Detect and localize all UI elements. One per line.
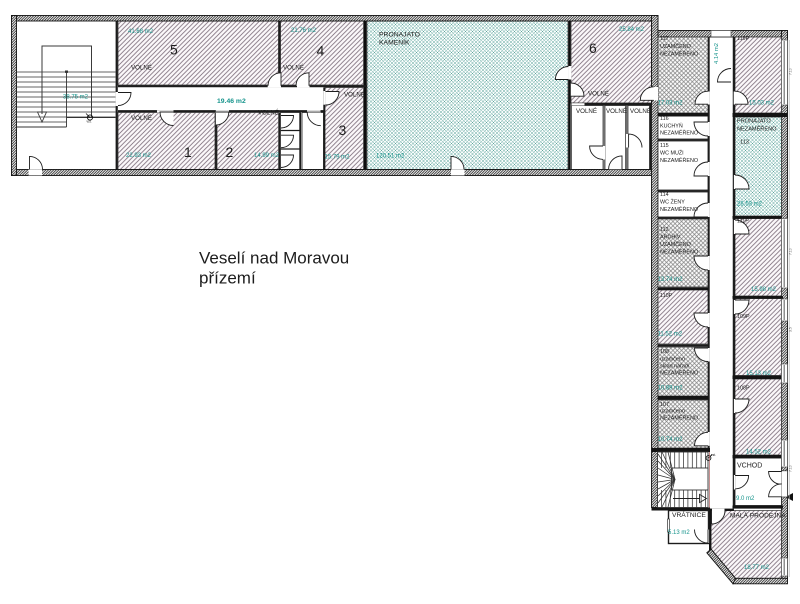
svg-text:110P: 110P	[660, 293, 673, 299]
svg-text:NEZAMĚŘENO: NEZAMĚŘENO	[660, 247, 698, 255]
svg-text:109P: 109P	[737, 314, 750, 320]
svg-text:NEZAMĚŘENO: NEZAMĚŘENO	[660, 156, 698, 164]
svg-text:3.5: 3.5	[789, 327, 793, 332]
svg-text:119P: 119P	[737, 36, 750, 42]
svg-text:38.75 m2: 38.75 m2	[63, 95, 89, 101]
svg-text:10.74 m2: 10.74 m2	[658, 437, 684, 443]
svg-text:107: 107	[660, 402, 669, 408]
svg-text:41.68 m2: 41.68 m2	[128, 29, 154, 35]
svg-text:22.93 m2: 22.93 m2	[126, 153, 152, 159]
svg-text:3: 3	[339, 122, 347, 138]
svg-text:9.0 m2: 9.0 m2	[736, 496, 755, 502]
svg-text:NEZAMĚŘENO: NEZAMĚŘENO	[660, 414, 698, 422]
svg-text:4.14 m2: 4.14 m2	[714, 43, 720, 64]
svg-text:NEZAMĚŘENO: NEZAMĚŘENO	[660, 50, 698, 58]
svg-text:PRONAJATO: PRONAJATO	[737, 119, 771, 125]
svg-text:vst.: vst.	[711, 453, 716, 457]
svg-text:2: 2	[226, 144, 234, 160]
svg-text:4: 4	[317, 43, 325, 59]
svg-text:7.10: 7.10	[789, 465, 793, 472]
svg-text:21.76 m2: 21.76 m2	[291, 28, 317, 34]
svg-text:19.46 m2: 19.46 m2	[217, 98, 246, 105]
svg-text:17.03 m2: 17.03 m2	[658, 101, 684, 107]
svg-text:KAMENÍK: KAMENÍK	[379, 38, 410, 47]
svg-text:13.74 m2: 13.74 m2	[658, 277, 684, 283]
svg-text:18.77 m2: 18.77 m2	[744, 565, 770, 571]
svg-text:PRONAJATO: PRONAJATO	[379, 32, 420, 39]
svg-text:WC MUŽI: WC MUŽI	[660, 149, 684, 157]
svg-text:VOLNÉ: VOLNÉ	[131, 115, 152, 122]
svg-text:26.53 m2: 26.53 m2	[737, 202, 763, 208]
svg-text:VOLNÉ: VOLNÉ	[344, 92, 365, 99]
svg-text:116: 116	[660, 116, 669, 122]
svg-text:15.03 m2: 15.03 m2	[749, 101, 775, 107]
svg-text:přízemí: přízemí	[199, 269, 256, 288]
svg-text:ARCHIV: ARCHIV	[660, 235, 681, 241]
svg-text:5.13 m2: 5.13 m2	[668, 530, 690, 536]
svg-text:15.13 m2: 15.13 m2	[746, 371, 772, 377]
svg-text:uzamčeno: uzamčeno	[660, 357, 685, 363]
svg-text:UZAMČENO: UZAMČENO	[660, 241, 691, 248]
svg-text:Veselí nad Moravou: Veselí nad Moravou	[199, 249, 349, 268]
svg-text:117: 117	[660, 36, 669, 42]
svg-text:10.89 m2: 10.89 m2	[658, 386, 684, 392]
svg-text:VRÁTNICE: VRÁTNICE	[672, 510, 706, 519]
svg-text:vst.: vst.	[87, 120, 92, 124]
svg-text:108: 108	[660, 349, 669, 355]
svg-text:7.10: 7.10	[789, 248, 793, 255]
svg-text:KUCHYŇ: KUCHYŇ	[660, 123, 683, 130]
svg-text:VCHOD: VCHOD	[737, 463, 762, 470]
svg-text:VOLNÉ: VOLNÉ	[131, 65, 152, 72]
svg-text:14.52 m2: 14.52 m2	[746, 450, 772, 456]
svg-text:NEZAMĚŘENO: NEZAMĚŘENO	[660, 129, 698, 137]
svg-text:VOLNÉ: VOLNÉ	[588, 91, 609, 98]
svg-text:25.84 m2: 25.84 m2	[619, 27, 645, 33]
svg-text:VOLNÉ: VOLNÉ	[606, 108, 627, 115]
svg-text:VOLNÉ: VOLNÉ	[630, 108, 651, 115]
svg-text:UZAMČENO: UZAMČENO	[660, 43, 691, 50]
svg-text:NEZAMĚŘENO: NEZAMĚŘENO	[737, 125, 777, 133]
svg-text:VOLNÉ: VOLNÉ	[576, 108, 597, 115]
svg-text:112: 112	[660, 227, 669, 233]
svg-text:115: 115	[660, 143, 669, 149]
svg-text:114: 114	[660, 192, 669, 198]
svg-text:NEZAMĚŘENO: NEZAMĚŘENO	[660, 205, 698, 213]
svg-text:108P: 108P	[737, 386, 750, 392]
svg-text:120.51 m2: 120.51 m2	[376, 154, 405, 160]
svg-text:7.10: 7.10	[789, 68, 793, 75]
svg-text:sklad nářadí: sklad nářadí	[660, 364, 690, 370]
svg-text:uzamčeno: uzamčeno	[660, 409, 685, 415]
svg-text:15.98 m2: 15.98 m2	[751, 287, 777, 293]
svg-text:14.99 m2: 14.99 m2	[254, 153, 280, 159]
svg-text:6: 6	[589, 40, 597, 56]
svg-text:111P: 111P	[737, 219, 749, 225]
svg-text:1: 1	[184, 144, 192, 160]
svg-text:113: 113	[740, 140, 749, 146]
svg-text:WC ŽENY: WC ŽENY	[660, 198, 685, 206]
svg-text:VOLNÉ: VOLNÉ	[258, 109, 279, 116]
svg-text:15.79 m2: 15.79 m2	[325, 155, 351, 161]
svg-text:MALÁ PRODEJNA: MALÁ PRODEJNA	[730, 511, 786, 520]
svg-text:NEZAMĚŘENO: NEZAMĚŘENO	[660, 369, 698, 377]
svg-text:11.52 m2: 11.52 m2	[658, 332, 683, 338]
svg-text:5: 5	[170, 42, 178, 58]
svg-text:VOLNÉ: VOLNÉ	[283, 65, 304, 72]
